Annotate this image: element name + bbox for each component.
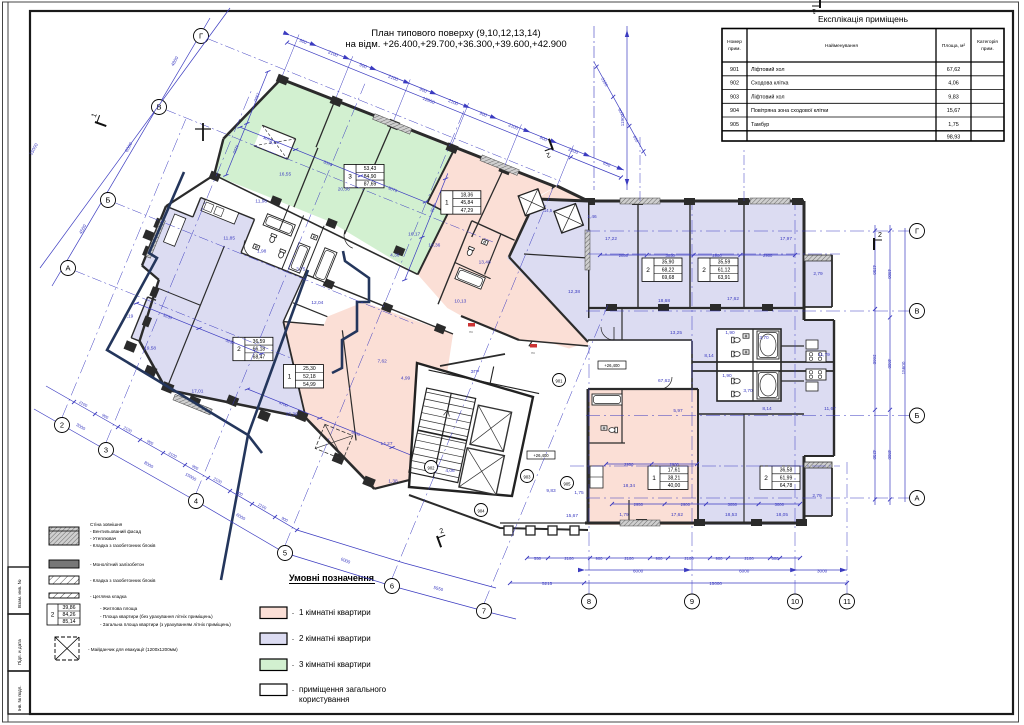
svg-text:- Вентильований фасад: - Вентильований фасад [90,528,141,534]
svg-text:- Кладка з газобетонних блоків: - Кладка з газобетонних блоків [90,578,156,583]
svg-text:11,98: 11,98 [255,199,267,205]
svg-text:901: 901 [730,67,739,73]
svg-text:903: 903 [730,94,739,100]
svg-text:Номер: Номер [727,39,742,45]
svg-text:18,36: 18,36 [428,243,440,249]
svg-text:- Площа квартири (без урахуван: - Площа квартири (без урахування літніх … [100,614,213,619]
svg-text:2950: 2950 [634,502,644,507]
svg-text:2: 2 [702,267,706,274]
svg-text:17,61: 17,61 [668,468,681,474]
svg-text:2900: 2900 [681,502,691,507]
svg-text:- Загальна площа квартири (з у: - Загальна площа квартири (з урахуванням… [100,622,231,627]
svg-text:Площа, м²: Площа, м² [942,43,966,49]
svg-text:1 кімнатні квартири: 1 кімнатні квартири [299,608,371,617]
svg-text:5,97: 5,97 [673,408,683,414]
svg-text:+26,400: +26,400 [533,453,549,458]
svg-text:План типового поверху (9,10,12: План типового поверху (9,10,12,13,14) [371,28,540,39]
svg-text:1,75: 1,75 [948,122,959,128]
svg-text:А: А [914,494,919,503]
svg-text:901: 901 [556,379,564,384]
svg-text:2100: 2100 [564,556,574,561]
svg-text:905: 905 [564,482,572,487]
svg-text:17,01: 17,01 [191,389,203,395]
svg-text:12,38: 12,38 [568,289,580,295]
svg-text:5215: 5215 [542,581,553,586]
svg-text:85,14: 85,14 [63,619,76,625]
svg-text:Г: Г [915,227,919,236]
svg-text:61,12: 61,12 [718,267,731,273]
svg-text:87,69: 87,69 [364,182,377,188]
svg-text:2100: 2100 [624,556,634,561]
svg-text:900: 900 [716,556,724,561]
svg-text:2900: 2900 [763,253,773,258]
svg-text:Експлікація приміщень: Експлікація приміщень [818,14,909,24]
svg-text:900: 900 [596,556,604,561]
svg-text:67,62: 67,62 [658,378,670,384]
svg-text:- Майданчик для евакуації (120: - Майданчик для евакуації (1200х1200мм) [88,646,178,652]
svg-text:11,79: 11,79 [818,352,830,358]
svg-text:18,36: 18,36 [461,192,474,198]
svg-text:3,70: 3,70 [743,388,753,394]
svg-text:18,34: 18,34 [623,483,635,489]
svg-text:905: 905 [730,122,739,128]
svg-text:2: 2 [646,267,650,274]
svg-text:2100: 2100 [744,556,754,561]
svg-text:11,67: 11,67 [824,406,836,412]
svg-text:12,04: 12,04 [311,300,323,306]
svg-text:1: 1 [288,373,292,380]
svg-text:25,30: 25,30 [286,412,298,418]
svg-text:17,62: 17,62 [727,296,739,302]
svg-text:8,14: 8,14 [704,353,714,359]
svg-text:4800: 4800 [887,450,892,460]
svg-text:1,79: 1,79 [619,512,629,518]
svg-text:4,99: 4,99 [401,376,411,382]
svg-text:Г: Г [199,32,203,41]
svg-text:903: 903 [524,475,532,480]
svg-text:68,22: 68,22 [662,267,675,273]
svg-text:Ліфтовий хол: Ліфтовий хол [751,66,785,73]
svg-text:900: 900 [656,556,664,561]
svg-text:2660: 2660 [872,355,877,365]
svg-text:39,86: 39,86 [63,605,76,611]
svg-text:А: А [65,264,70,273]
svg-text:4,06: 4,06 [445,468,455,474]
svg-text:пк: пк [531,351,535,355]
svg-text:67,62: 67,62 [947,67,961,73]
svg-text:17,97: 17,97 [780,236,792,242]
svg-text:4: 4 [194,497,198,506]
svg-text:902: 902 [428,466,436,471]
svg-text:4,06: 4,06 [948,81,959,87]
svg-text:63,91: 63,91 [718,275,731,281]
svg-text:-: - [292,663,294,669]
svg-text:Умовні позначення: Умовні позначення [289,573,374,583]
svg-text:84,26: 84,26 [63,612,76,618]
svg-text:пк: пк [469,330,473,334]
svg-text:20,36: 20,36 [338,187,350,193]
svg-text:52,18: 52,18 [303,374,316,380]
svg-text:45,84: 45,84 [461,200,474,206]
svg-text:3050: 3050 [728,502,738,507]
svg-text:4600: 4600 [887,359,892,369]
svg-text:47,29: 47,29 [461,208,474,214]
svg-text:18,68: 18,68 [658,298,670,304]
svg-text:4800: 4800 [887,269,892,279]
svg-text:15,67: 15,67 [947,108,961,114]
svg-text:17,62: 17,62 [671,512,683,518]
svg-text:6000: 6000 [739,569,750,574]
svg-text:3,70: 3,70 [759,335,769,341]
svg-text:1,90: 1,90 [722,373,732,379]
svg-text:3 кімнатні квартири: 3 кімнатні квартири [299,660,371,669]
svg-text:9,83: 9,83 [546,488,556,494]
svg-text:2900: 2900 [712,253,722,258]
svg-text:35,90: 35,90 [662,260,675,266]
svg-text:6000: 6000 [633,569,644,574]
svg-text:-: - [292,611,294,617]
svg-text:Ліфтовий хол: Ліфтовий хол [751,93,785,100]
svg-text:- Кладка з газобетонних блоків: - Кладка з газобетонних блоків [90,543,156,548]
svg-text:Стіна зовнішня: Стіна зовнішня [90,522,123,527]
svg-text:7,62: 7,62 [377,359,387,365]
svg-text:1: 1 [812,7,816,14]
svg-text:1,98: 1,98 [257,248,267,254]
svg-text:38,21: 38,21 [668,475,681,481]
svg-text:- Монолітний залізобетон: - Монолітний залізобетон [90,561,145,567]
svg-text:Повітряна зона сходової клітки: Повітряна зона сходової клітки [751,108,828,114]
svg-text:8: 8 [587,597,591,606]
svg-text:550: 550 [534,556,542,561]
svg-text:2100: 2100 [684,556,694,561]
svg-text:+26,400: +26,400 [604,363,620,368]
svg-text:Інв. № подл.: Інв. № подл. [17,686,22,711]
svg-text:17,22: 17,22 [605,236,617,242]
svg-text:3000: 3000 [817,569,828,574]
svg-text:1,75: 1,75 [574,490,584,496]
svg-text:Сходова клітка: Сходова клітка [751,81,789,87]
svg-text:13,48: 13,48 [479,260,491,266]
svg-text:84,90: 84,90 [364,174,377,180]
svg-text:- Житлова площа: - Житлова площа [100,606,138,611]
svg-text:-: - [292,637,294,643]
svg-text:904: 904 [730,108,739,114]
svg-text:-: - [292,688,294,694]
svg-text:18,53: 18,53 [725,512,737,518]
svg-text:68,47: 68,47 [253,354,266,360]
svg-text:користування: користування [299,695,350,704]
svg-text:1,38: 1,38 [388,478,398,484]
svg-text:13,25: 13,25 [670,330,682,336]
svg-text:40,00: 40,00 [668,483,681,489]
svg-text:прим.: прим. [728,47,741,52]
svg-text:4250: 4250 [872,450,877,460]
svg-text:16,17: 16,17 [408,231,420,237]
svg-text:Тамбур: Тамбур [751,122,769,128]
svg-text:18,05: 18,05 [776,512,788,518]
svg-text:53,43: 53,43 [364,166,377,172]
svg-text:2: 2 [764,475,768,482]
svg-text:Підп. и дата: Підп. и дата [17,639,22,665]
svg-text:4250: 4250 [872,265,877,275]
svg-text:19,58: 19,58 [144,346,156,352]
svg-text:1,46: 1,46 [587,214,597,220]
svg-text:2: 2 [51,612,55,619]
svg-text:6: 6 [390,582,394,591]
svg-text:7: 7 [482,607,486,616]
svg-text:25,30: 25,30 [303,366,316,372]
svg-text:- Утеплювач: - Утеплювач [90,536,117,541]
svg-text:3: 3 [104,446,108,455]
svg-text:прим.: прим. [981,47,994,52]
svg-text:15000: 15000 [709,581,722,586]
svg-text:9: 9 [690,597,694,606]
svg-text:10,13: 10,13 [454,298,466,304]
svg-text:35,59: 35,59 [718,260,731,266]
svg-text:3050: 3050 [666,253,676,258]
svg-text:904: 904 [478,509,486,514]
svg-text:1,90: 1,90 [725,330,735,336]
svg-text:8,14: 8,14 [762,406,772,412]
svg-text:3000: 3000 [775,502,785,507]
svg-text:3: 3 [348,173,352,180]
svg-text:2,79: 2,79 [813,271,823,277]
svg-text:11: 11 [843,597,851,606]
svg-text:приміщення загального: приміщення загального [299,685,387,694]
svg-text:2: 2 [237,346,241,353]
svg-text:9,83: 9,83 [948,94,959,100]
svg-text:- Цегляна кладка: - Цегляна кладка [90,594,127,599]
svg-text:1: 1 [652,475,656,482]
svg-text:Найменування: Найменування [825,42,858,49]
svg-text:В: В [914,307,919,316]
svg-text:14,27: 14,27 [380,441,392,447]
svg-text:3,75: 3,75 [296,266,306,272]
svg-text:64,78: 64,78 [780,483,793,489]
svg-text:61,99: 61,99 [780,475,793,481]
svg-text:69,68: 69,68 [662,275,675,281]
svg-text:Б: Б [106,196,111,205]
svg-text:10: 10 [791,597,799,606]
svg-text:на відм. +26.400,+29.700,+36.3: на відм. +26.400,+29.700,+36.300,+39.600… [345,39,566,50]
svg-text:36,58: 36,58 [780,468,793,474]
svg-text:2 кімнатні квартири: 2 кімнатні квартири [299,634,371,643]
svg-text:15,67: 15,67 [566,513,578,519]
svg-text:54,99: 54,99 [303,382,316,388]
svg-text:902: 902 [730,81,739,87]
svg-text:16,55: 16,55 [279,172,291,178]
svg-text:1: 1 [445,200,449,207]
svg-text:2850: 2850 [619,253,629,258]
svg-text:Б: Б [915,411,920,420]
svg-text:2: 2 [60,421,64,430]
svg-text:500: 500 [772,556,780,561]
svg-text:98,93: 98,93 [947,135,961,141]
svg-text:Взам. инв. №: Взам. инв. № [17,579,22,608]
svg-text:11,85: 11,85 [223,235,235,241]
svg-text:4,36: 4,36 [390,253,400,259]
svg-text:2: 2 [878,232,882,239]
svg-text:36,59: 36,59 [253,339,266,345]
svg-text:Категорія: Категорія [977,39,998,45]
svg-text:5: 5 [283,549,287,558]
svg-text:14,5: 14,5 [544,208,553,213]
